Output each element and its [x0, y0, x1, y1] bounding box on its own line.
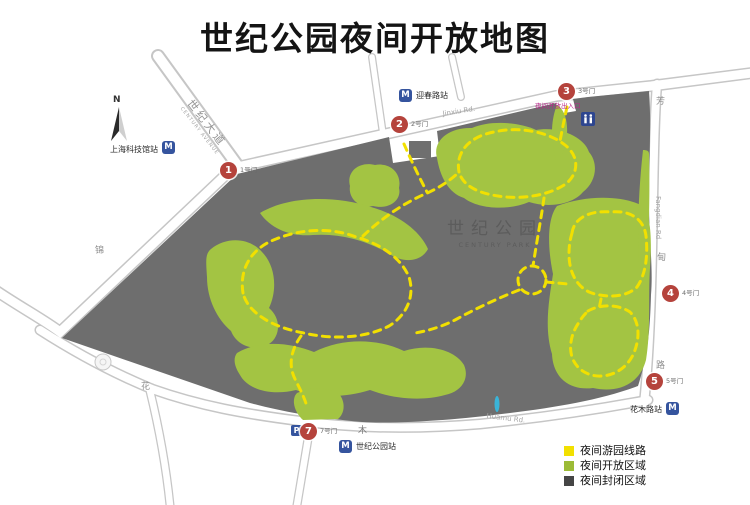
gate-marker-5: 5 [646, 373, 663, 390]
legend-label-closed: 夜间封闭区域 [580, 475, 646, 486]
legend-label-open: 夜间开放区域 [580, 460, 646, 471]
metro-icon-huamu-rd: M [666, 402, 679, 415]
night-entrance-note: 夜间开放出入口 [535, 103, 581, 110]
map-graphic [0, 0, 750, 505]
gate-label-7: 7号门 [320, 428, 337, 435]
compass-north-label: N [113, 95, 121, 105]
roundabout-icon [95, 354, 111, 370]
legend-swatch-closed [564, 476, 574, 486]
gate-label-5: 5号门 [666, 378, 683, 385]
open-area-center-south [235, 341, 466, 398]
gate-marker-1: 1 [220, 162, 237, 179]
road-label-fangdian-char1: 芳 [656, 94, 665, 107]
open-area-north [436, 123, 595, 208]
legend-label-route: 夜间游园线路 [580, 445, 646, 456]
gate-marker-7: 7 [300, 423, 317, 440]
legend-row-open: 夜间开放区域 [564, 460, 646, 471]
open-area-gate7 [294, 388, 344, 420]
road-label-jinxiu-char: 锦 [95, 243, 104, 256]
open-area-north-nub [349, 164, 399, 207]
legend-swatch-open [564, 461, 574, 471]
legend-swatch-route [564, 446, 574, 456]
station-label-huamu-rd: 花木路站 [622, 406, 662, 414]
metro-icon-science-museum: M [162, 141, 175, 154]
gate-marker-2: 2 [391, 116, 408, 133]
metro-icon-century-park: M [339, 440, 352, 453]
park-name-watermark: 世纪公园 CENTURY PARK [430, 214, 560, 249]
station-label-century-park: 世纪公园站 [356, 443, 396, 451]
pond-mark [495, 396, 500, 412]
road-label-fangdian-char3: 路 [656, 358, 665, 371]
century-park-night-map: 世纪公园夜间开放地图 N 世纪公园 CENTURY PARK 世纪大道 CENT… [0, 0, 750, 505]
road-label-huamu-char2: 木 [358, 423, 367, 436]
park-name: 世纪公园 [430, 214, 560, 239]
gate-label-2: 2号门 [411, 121, 428, 128]
gate-label-3: 3号门 [578, 88, 595, 95]
gate-label-1: 1号门 [240, 167, 257, 174]
entrance-building [409, 141, 431, 158]
road-label-huamu-char1: 花 [141, 379, 150, 392]
legend: 夜间游园线路 夜间开放区域 夜间封闭区域 [564, 445, 646, 486]
gate-marker-4: 4 [662, 285, 679, 302]
page-title: 世纪公园夜间开放地图 [0, 12, 750, 60]
gate-marker-3: 3 [558, 83, 575, 100]
legend-row-route: 夜间游园线路 [564, 445, 646, 456]
park-name-en: CENTURY PARK [430, 241, 560, 249]
compass-icon [111, 107, 127, 141]
station-label-yingchun: 迎春路站 [416, 92, 448, 100]
metro-icon-yingchun: M [399, 89, 412, 102]
gate-label-4: 4号门 [682, 290, 699, 297]
road-label-fangdian-en: Fangdian Rd [654, 196, 662, 239]
legend-row-closed: 夜间封闭区域 [564, 475, 646, 486]
restroom-icon [581, 112, 595, 126]
station-label-science-museum: 上海科技馆站 [100, 146, 158, 154]
road-label-fangdian-char2: 甸 [657, 250, 666, 263]
